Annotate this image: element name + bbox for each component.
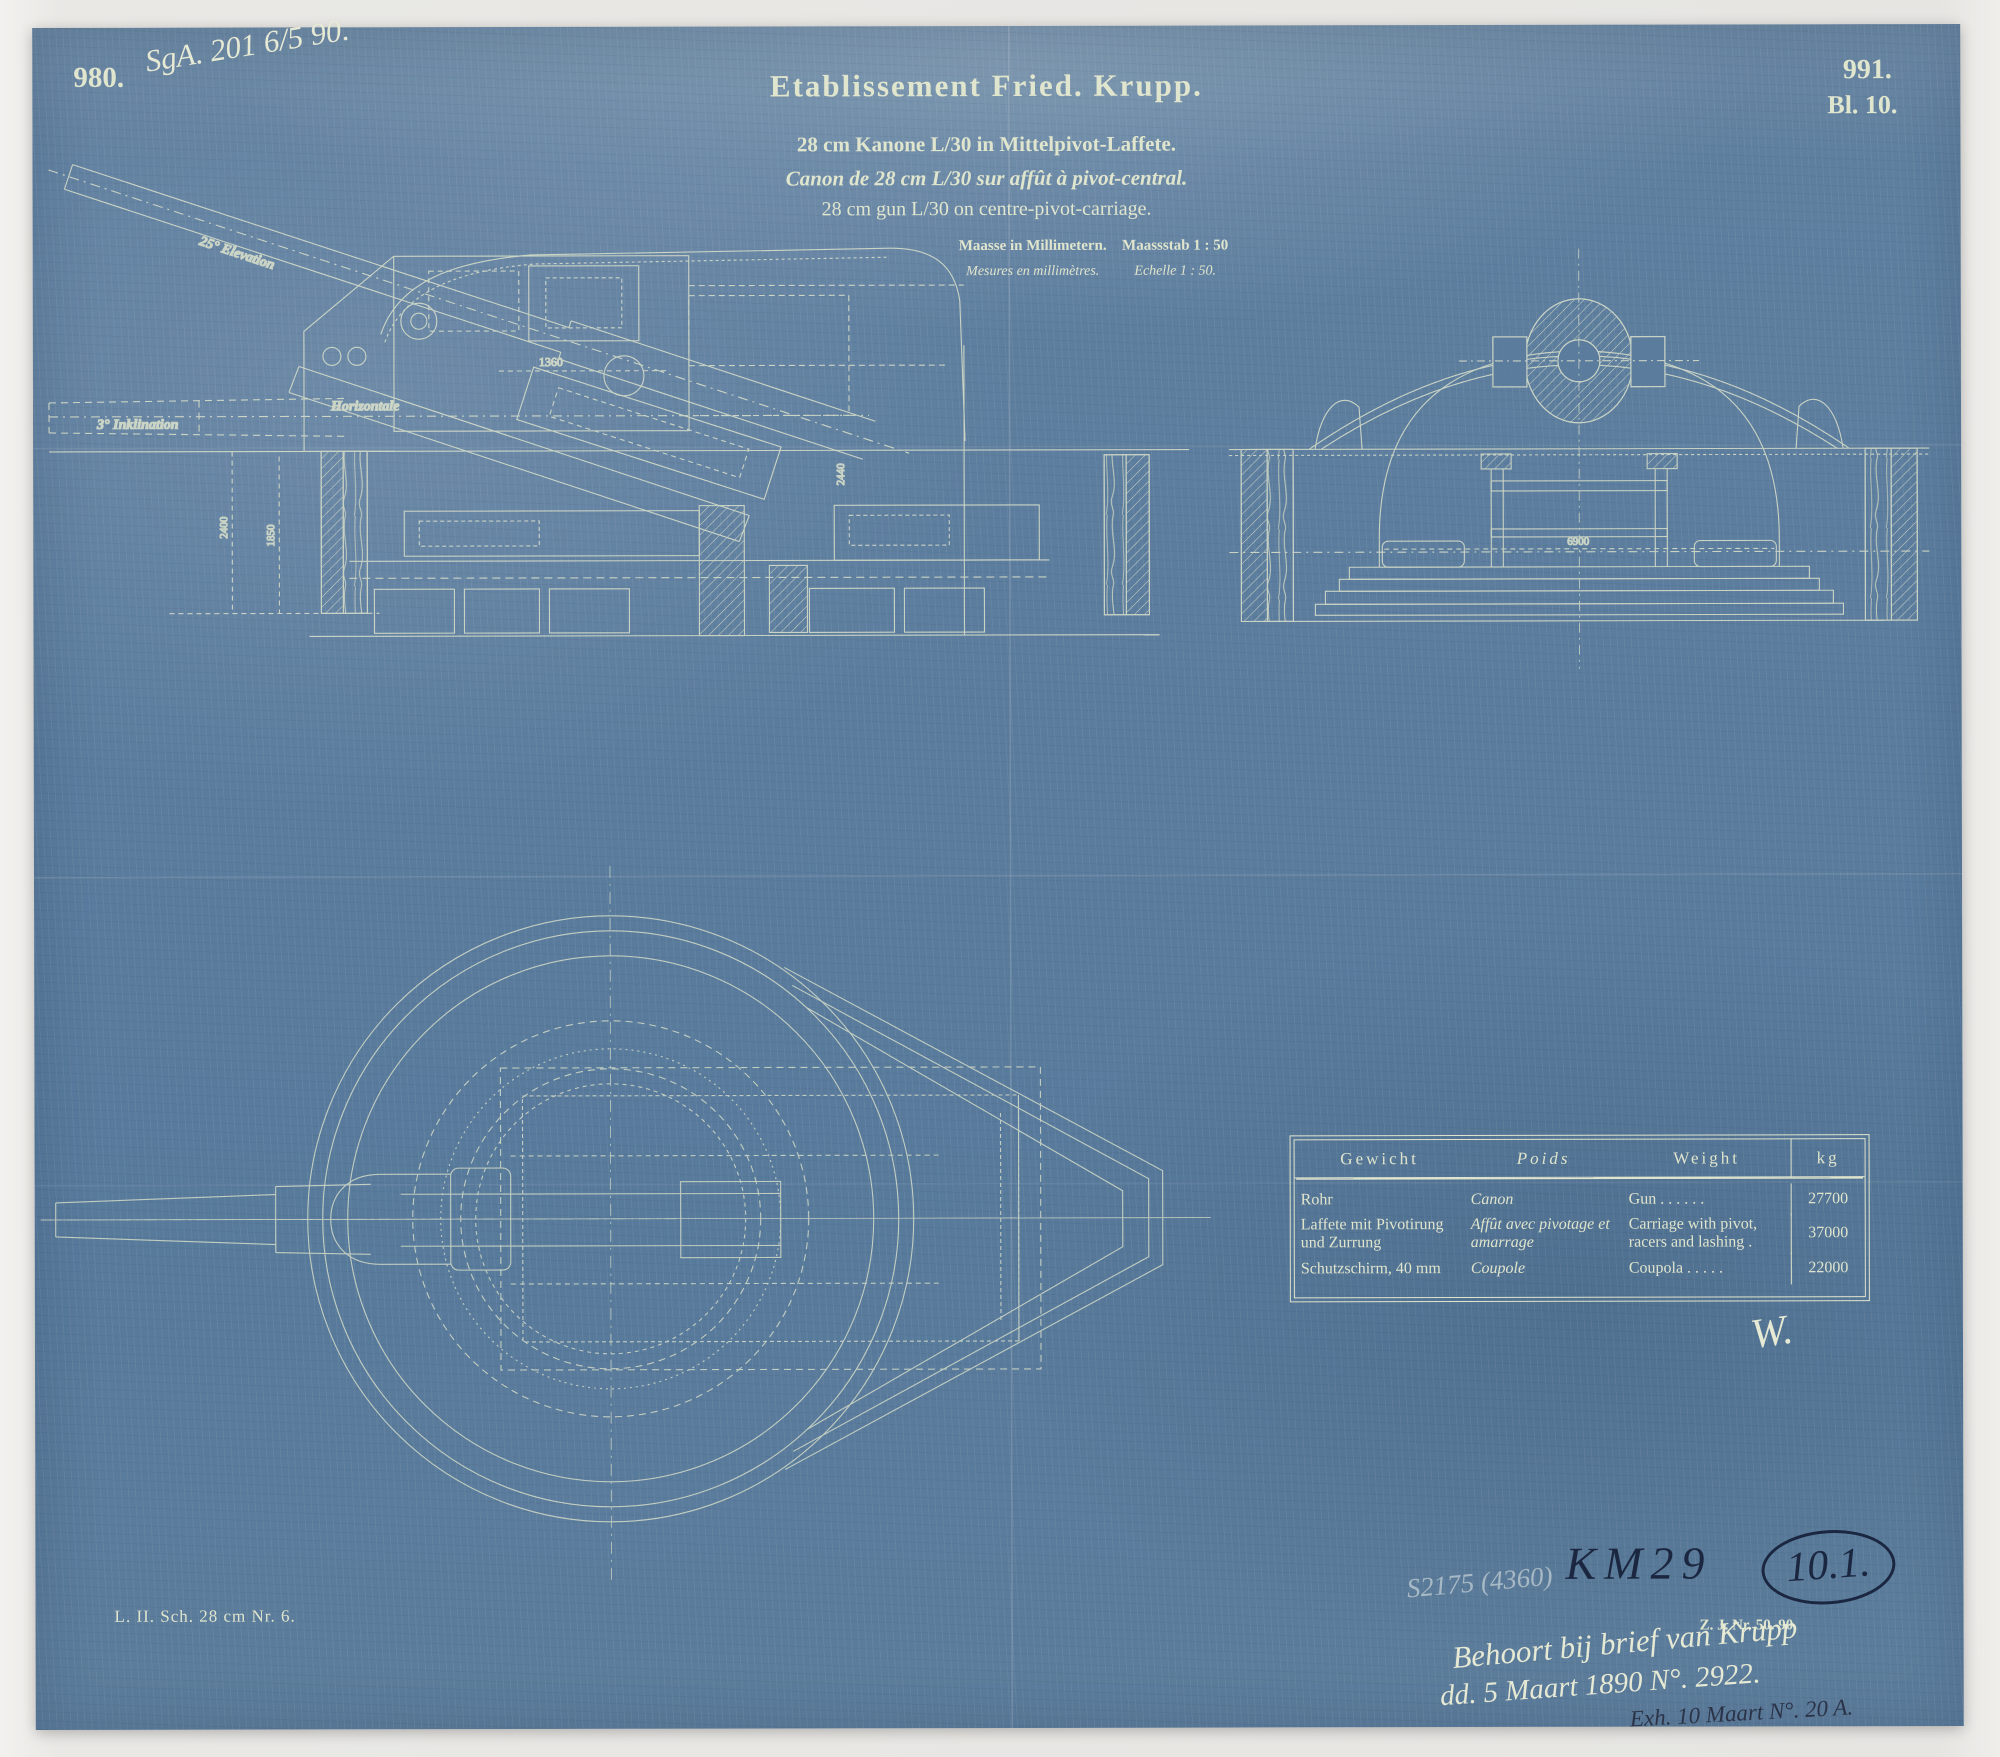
label-horizontal: Horizontale <box>330 399 400 414</box>
pit-wall-right <box>1865 448 1917 620</box>
label-elevation: 25° Elevation <box>196 234 276 273</box>
registry-handwritten-note: SgA. 201 6/5 90. <box>143 11 352 79</box>
parapet-wall-right <box>1104 455 1149 615</box>
table-row: Rohr Canon Gun . . . . . . 27700 <box>1295 1184 1865 1215</box>
weight-table: Gewicht Poids Weight kg Rohr Canon Gun .… <box>1294 1138 1866 1298</box>
cell-en: Carriage with pivot, racers and lashing … <box>1623 1214 1791 1253</box>
plan-view-drawing <box>40 855 1212 1587</box>
barrel-plan <box>41 1168 681 1271</box>
table-row: Schutzschirm, 40 mm Coupole Coupola . . … <box>1295 1253 1865 1284</box>
parapet-wall-left <box>321 451 367 613</box>
dim-label: 6900 <box>1567 536 1590 548</box>
weight-table-header: Gewicht Poids Weight kg <box>1295 1139 1865 1178</box>
col-header-german: Gewicht <box>1295 1148 1465 1170</box>
col-header-unit: kg <box>1791 1138 1865 1177</box>
plate-code: L. II. Sch. 28 cm Nr. 6. <box>115 1606 296 1626</box>
cell-fr: Coupole <box>1465 1258 1623 1279</box>
cell-en: Gun . . . . . . <box>1623 1189 1791 1210</box>
cell-kg: 27700 <box>1791 1183 1865 1215</box>
cell-de: Laffete mit Pivotirung und Zurrung <box>1295 1215 1465 1254</box>
dim-label: 2400 <box>218 516 230 539</box>
cross-section-drawing: 6900 <box>1229 248 1930 669</box>
side-elevation-drawing: 2400 1850 1360 2440 25° Elevation Horizo… <box>49 165 1200 687</box>
col-header-english: Weight <box>1623 1147 1791 1169</box>
table-row: Laffete mit Pivotirung und Zurrung Affût… <box>1295 1214 1865 1254</box>
draughtsman-monogram: W. <box>1748 1306 1796 1359</box>
dim-label: 2440 <box>835 463 847 486</box>
dimension-lines <box>169 371 670 614</box>
foundation <box>349 505 1049 636</box>
cell-en: Coupola . . . . . <box>1623 1258 1791 1279</box>
cell-fr: Canon <box>1465 1189 1623 1210</box>
cell-de: Schutzschirm, 40 mm <box>1295 1259 1465 1280</box>
cell-fr: Affût avec pivotage et amarrage <box>1465 1215 1623 1254</box>
handwritten-line-3: Exh. 10 Maart N°. 20 A. <box>1629 1694 1854 1732</box>
plate-number-left: 980. <box>73 62 124 95</box>
cell-de: Rohr <box>1295 1190 1465 1211</box>
cupola-roof-line <box>381 248 965 442</box>
plate-number-right: 991. <box>1812 54 1922 86</box>
subtitle-german: 28 cm Kanone L/30 in Mittelpivot-Laffete… <box>586 131 1386 158</box>
pit-wall-left <box>1241 449 1293 621</box>
photo-of-blueprint: { "colors":{"paper_blue":"#5b7c9d","line… <box>0 0 2000 1757</box>
inventory-code: KM29 <box>1565 1537 1712 1590</box>
carriage-structure <box>289 255 965 636</box>
col-header-french: Poids <box>1465 1147 1623 1169</box>
cell-kg: 37000 <box>1791 1213 1865 1254</box>
pencil-note: S2175 (4360) <box>1405 1561 1553 1605</box>
sheet-number: Bl. 10. <box>1807 90 1917 120</box>
dim-label: 1850 <box>265 524 277 547</box>
title-company: Etablissement Fried. Krupp. <box>586 67 1386 105</box>
blueprint-sheet: 980. SgA. 201 6/5 90. 991. Bl. 10. Etabl… <box>32 24 1964 1730</box>
dim-label: 1360 <box>539 355 563 369</box>
circled-number: 10.1. <box>1759 1526 1898 1609</box>
cell-kg: 22000 <box>1791 1252 1865 1284</box>
label-inclination: 3° Inklination <box>96 418 179 433</box>
